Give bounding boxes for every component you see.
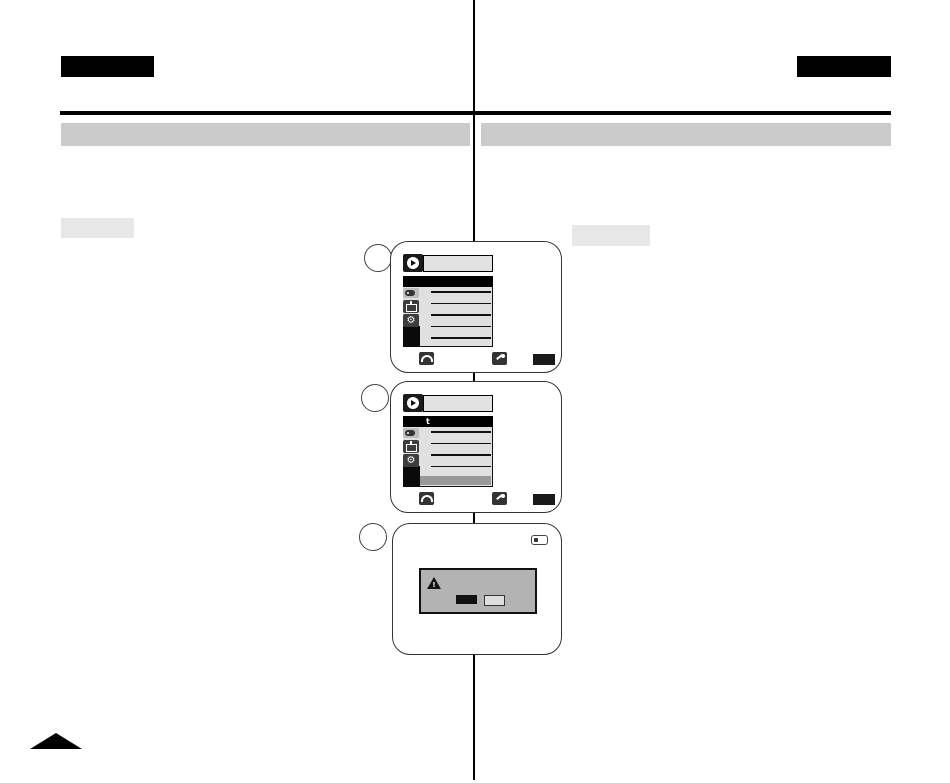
manual-page: ⚙ t [0,0,950,783]
lcd-screen: t ⚙ [403,394,493,487]
section-title-bar-left [61,123,470,146]
screen-card-warning-dialog: ! [392,523,562,655]
menu-item-line [431,443,491,445]
menu-button [533,354,555,365]
page-corner-triangle [30,733,82,749]
joystick-icon [492,492,507,505]
menu-item-line [431,431,491,433]
menu-item-line [431,291,491,293]
menu-return-icon: t [426,417,430,426]
menu-item-line [431,326,491,328]
selected-menu-row: t [403,416,493,427]
step-number-circle-2 [361,384,389,412]
dialog-dark-button [456,595,477,604]
battery-icon [531,535,548,545]
warning-triangle-icon: ! [427,577,441,589]
menu-footer-highlight-bar [420,476,491,485]
menu-title-bar [423,255,493,272]
inline-label-box-left [61,218,134,238]
jog-dial-icon [419,352,434,365]
play-mode-icon [403,394,423,412]
jog-dial-icon [419,492,434,505]
menu-button [533,494,555,505]
selected-menu-row [403,276,493,287]
menu-tab-sidebar: ⚙ [403,287,420,347]
menu-item-line [431,466,491,468]
lcd-screen: ⚙ [403,254,493,347]
screen-card-menu-list: ⚙ [390,241,562,373]
screen-card-menu-submenu: t ⚙ [390,381,562,513]
dialog-light-button [484,595,505,606]
section-title-bar-right [481,123,891,146]
settings-gear-icon: ⚙ [403,314,419,327]
tape-card-icon [403,288,419,298]
play-mode-icon [403,254,423,272]
inline-label-box-right [572,225,650,246]
menu-item-line [431,454,491,456]
menu-item-line [431,337,491,339]
language-tab-right [797,56,891,77]
tape-card-icon [403,428,419,438]
joystick-icon [492,352,507,365]
tv-display-icon [403,440,419,453]
step-number-circle-1 [364,244,392,272]
settings-gear-icon: ⚙ [403,454,419,467]
menu-title-bar [423,395,493,412]
language-tab-left [61,56,154,77]
menu-item-line [431,303,491,305]
step-number-circle-3 [359,523,387,551]
menu-item-list [420,287,493,347]
menu-item-line [431,314,491,316]
tv-display-icon [403,300,419,313]
header-rule [60,111,891,115]
menu-tab-sidebar: ⚙ [403,427,420,487]
warning-dialog: ! [419,568,537,614]
menu-item-list [420,427,493,487]
